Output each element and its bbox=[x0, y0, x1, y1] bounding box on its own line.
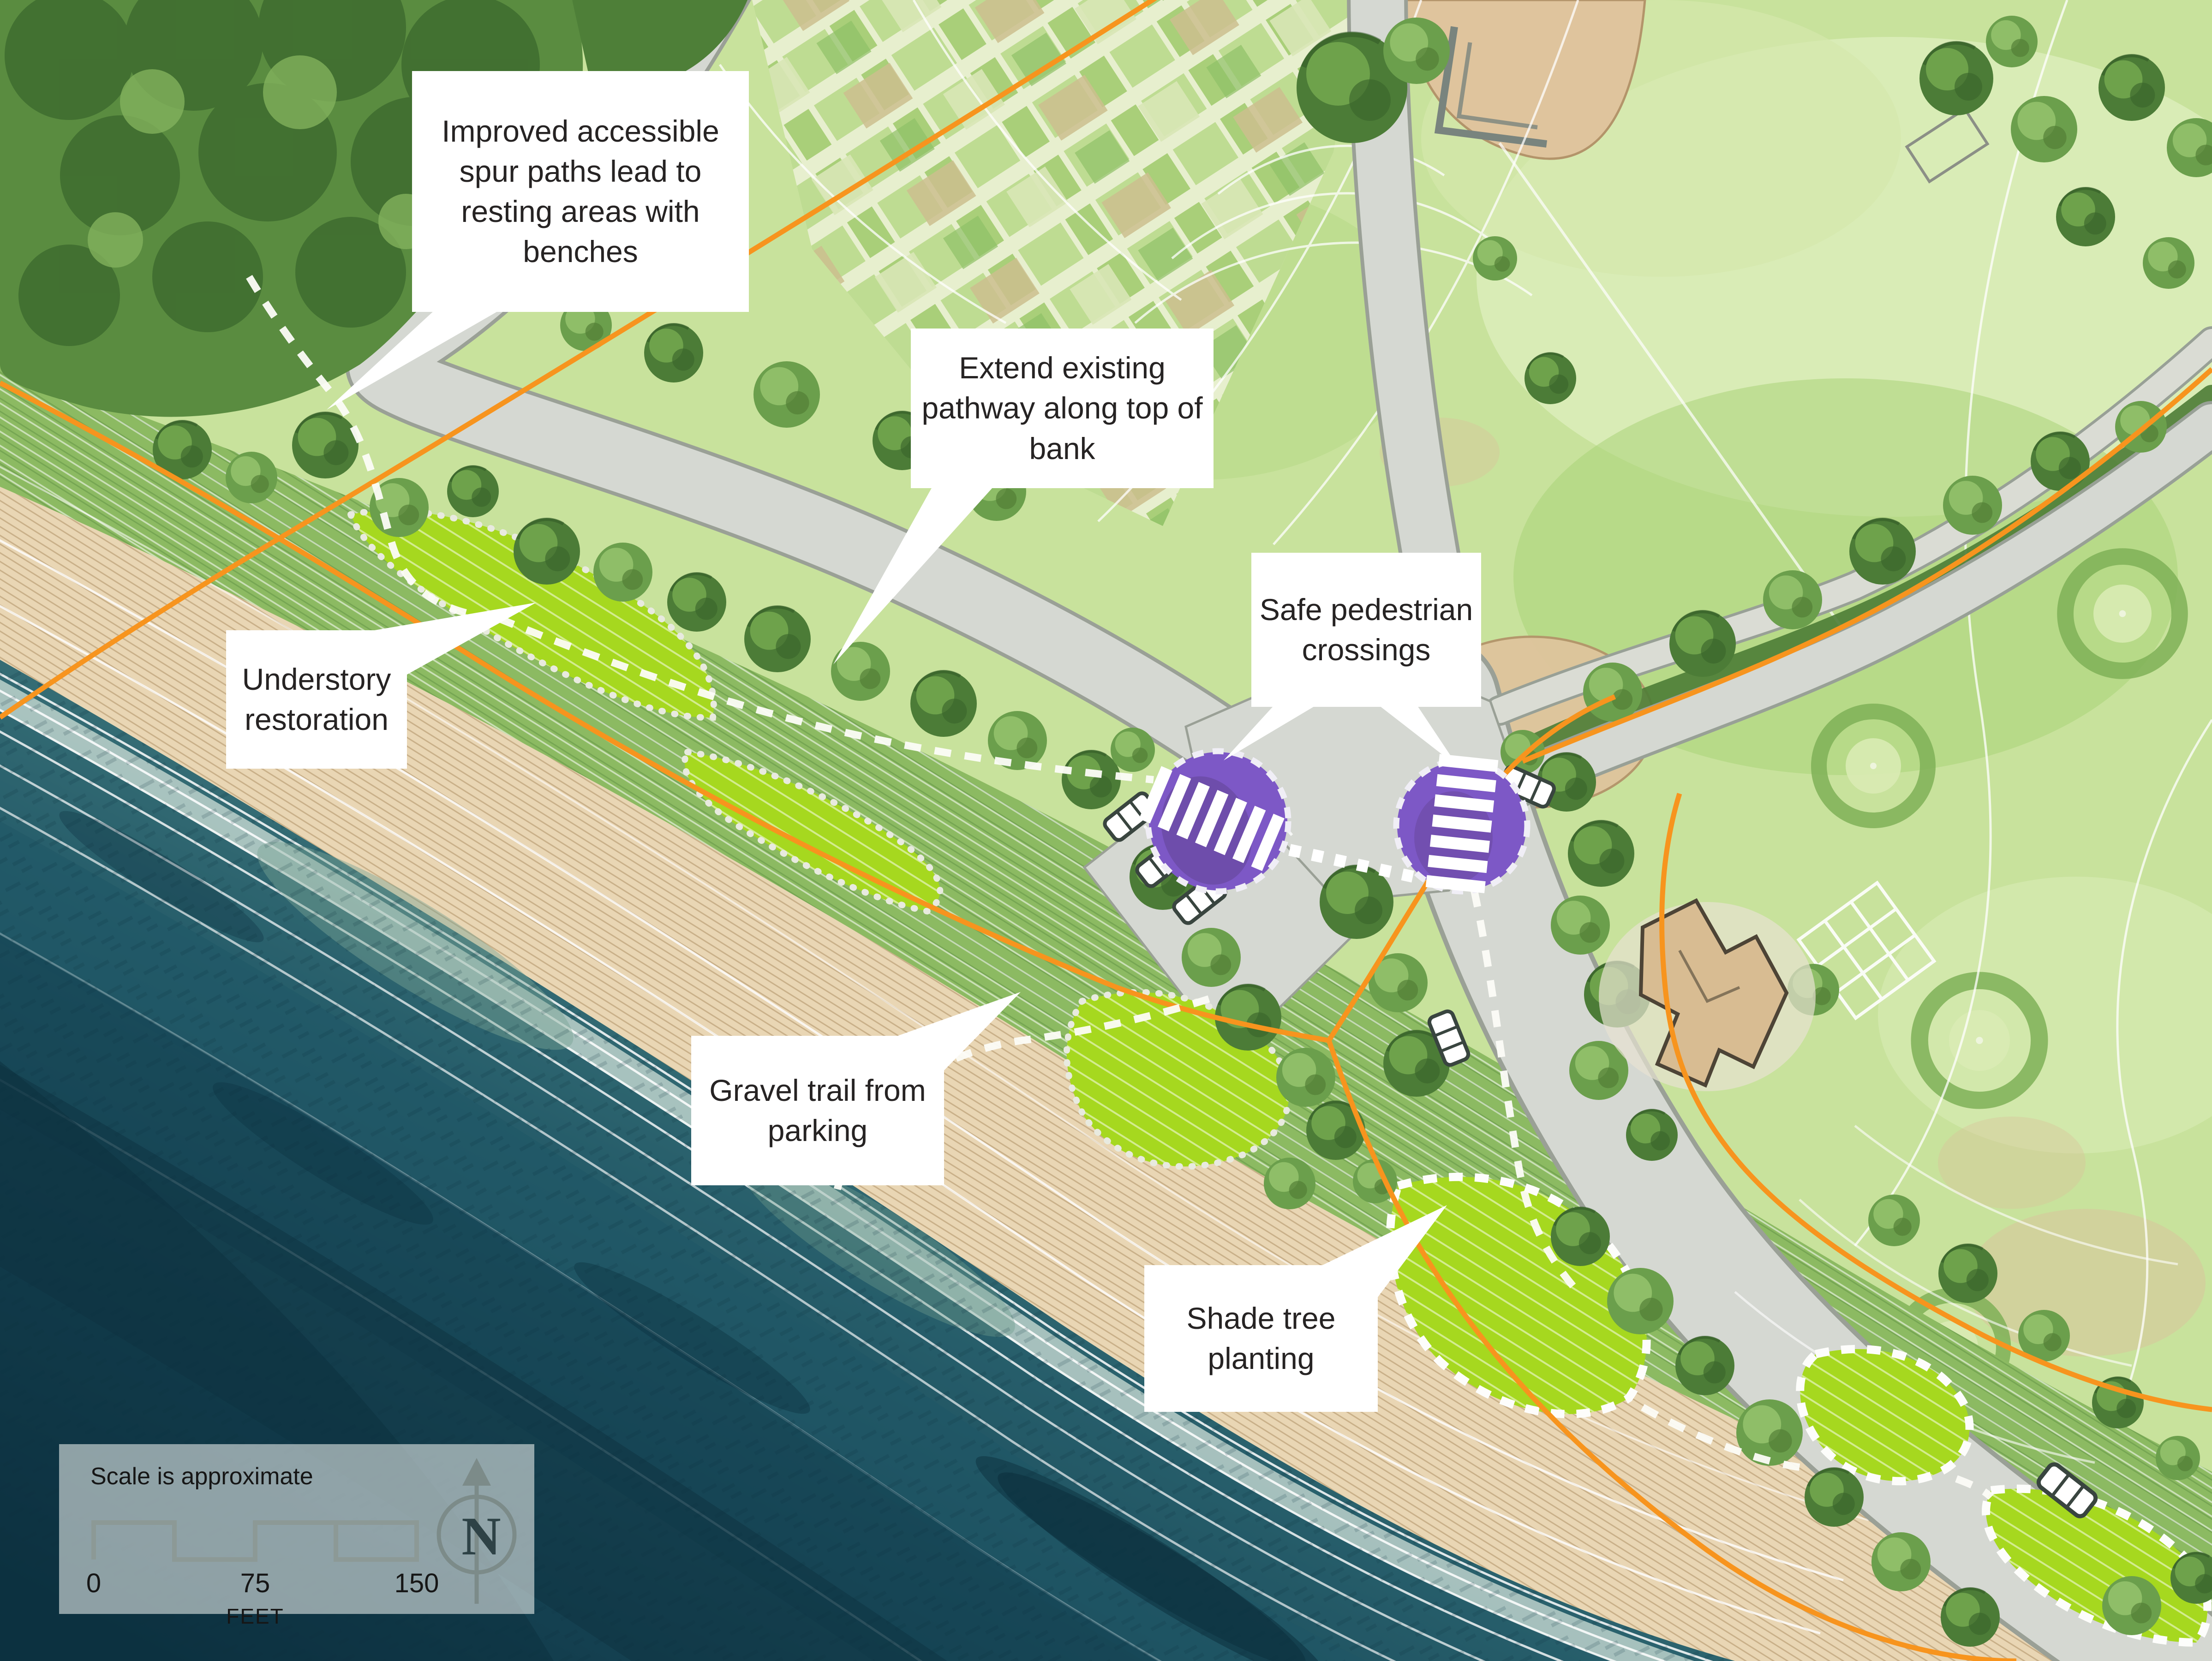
map-legend: Scale is approximate 0 75 150 FEET N bbox=[59, 1444, 534, 1614]
scale-tick-75: 75 bbox=[237, 1568, 274, 1599]
callout-label: Shade tree planting bbox=[1147, 1298, 1375, 1379]
park-building bbox=[1599, 901, 1816, 1091]
callout-gravel-trail: Gravel trail from parking bbox=[691, 1036, 944, 1185]
callout-improved-spur-paths: Improved accessible spur paths lead to r… bbox=[412, 71, 749, 312]
callout-shade-tree-planting: Shade tree planting bbox=[1144, 1265, 1378, 1412]
callout-extend-pathway: Extend existing pathway along top of ban… bbox=[911, 329, 1214, 488]
scale-bar-icon bbox=[89, 1513, 440, 1566]
shoreline-park-plan-map: Improved accessible spur paths lead to r… bbox=[0, 0, 2212, 1661]
scale-note: Scale is approximate bbox=[90, 1463, 313, 1490]
callout-safe-crossings: Safe pedestrian crossings bbox=[1251, 553, 1481, 707]
scale-tick-0: 0 bbox=[80, 1568, 108, 1599]
watercolor-plan-canvas bbox=[0, 0, 2212, 1661]
callout-understory-restoration: Understory restoration bbox=[226, 630, 407, 769]
callout-label: Gravel trail from parking bbox=[694, 1070, 941, 1151]
north-label: N bbox=[449, 1505, 514, 1568]
callout-label: Extend existing pathway along top of ban… bbox=[914, 348, 1211, 468]
callout-label: Improved accessible spur paths lead to r… bbox=[415, 111, 746, 272]
callout-label: Safe pedestrian crossings bbox=[1254, 590, 1478, 670]
scale-unit-label: FEET bbox=[211, 1604, 299, 1629]
callout-label: Understory restoration bbox=[229, 659, 404, 740]
